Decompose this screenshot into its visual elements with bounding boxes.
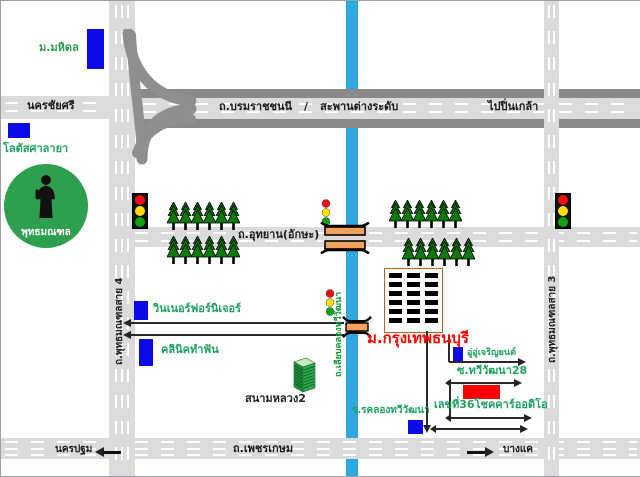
phutthamonthon-monument: พุทธมณฑล <box>4 164 88 248</box>
tree-row <box>167 236 239 264</box>
road-label-nakhon-chai-si: นครชัยศรี <box>27 100 75 112</box>
arrow-left-icon <box>430 425 436 433</box>
dental-clinic-marker <box>139 339 153 366</box>
road-label-sai4: ถ.พุทธมณฑลสาย 4 <box>112 239 127 365</box>
bridge-utthayan <box>319 222 371 254</box>
tree-row <box>402 238 474 266</box>
sanam-luang2-building <box>291 356 318 393</box>
route-line <box>130 334 344 336</box>
winner-furniture-marker <box>134 301 148 320</box>
mahidol-label: ม.มหิดล <box>39 42 79 54</box>
route-line <box>130 322 344 324</box>
school-label: ร.รคลองทวีวัฒนา <box>352 405 430 416</box>
road-label-utthayan: ถ.อุทยาน(อักษะ) <box>238 229 319 241</box>
mahidol-marker <box>87 29 104 69</box>
dental-clinic-label: คลินิคทำฟัน <box>161 344 219 356</box>
road-label-overpass: สะพานต่างระดับ <box>320 101 398 113</box>
route-line <box>449 361 520 363</box>
road-label-sai3: ถ.พุทธมณฑลสาย 3 <box>545 239 560 363</box>
tree-row <box>167 202 239 230</box>
route-line <box>450 417 526 419</box>
road-label-separator: / <box>304 101 308 113</box>
road-label-to-pinklao: ไปปิ่นเกล้า <box>488 101 538 113</box>
road-label-bang-khae: บางแค <box>503 444 533 455</box>
tree-row <box>389 200 461 228</box>
soi28-label: ซ.ทวีวัฒนา28 <box>457 365 527 377</box>
route-line <box>450 382 516 384</box>
tree-icon <box>449 200 462 228</box>
tree-icon <box>462 238 475 266</box>
buddha-statue-icon <box>29 174 63 218</box>
map-canvas: นครชัยศรี ถ.บรมราชชนนี / สะพานต่างระดับ … <box>0 0 640 477</box>
garage-marker <box>453 347 463 361</box>
arrow-right-icon <box>524 414 532 422</box>
road-label-text: ถ.บรมราชชนนี <box>219 101 292 113</box>
road-label-phetkasem: ถ.เพชรเกษม <box>233 443 293 455</box>
road-label-nakhon-pathom: นครปฐม <box>55 444 92 455</box>
winner-furniture-label: วินเนอร์ฟอร์นิเจอร์ <box>153 303 241 315</box>
tree-icon <box>227 202 240 230</box>
lotus-marker <box>8 123 30 138</box>
university-building <box>384 268 443 333</box>
road-label-liap-khlong: ถ.เลียบคลองทวีวัฒนา <box>332 273 346 377</box>
arrow-right-icon <box>514 379 522 387</box>
traffic-light-icon <box>132 193 148 229</box>
interchange-ramps <box>101 29 216 169</box>
arrow-left-icon <box>445 414 451 422</box>
lotus-label: โลตัสศาลายา <box>3 143 68 155</box>
sanam-luang2-label: สนามหลวง2 <box>245 393 306 405</box>
school-marker <box>408 420 423 434</box>
arrow-right-icon <box>485 447 494 457</box>
university-label: ม.กรุงเทพธนบุรี <box>367 330 469 347</box>
garage-label: อู่อู่เจริญยนต์ <box>467 349 516 359</box>
traffic-light-icon <box>555 193 571 229</box>
car-audio-marker <box>463 385 500 399</box>
phutthamonthon-label: พุทธมณฑล <box>4 225 88 240</box>
road-label-borommaratchachonnani: ถ.บรมราชชนนี / สะพานต่างระดับ <box>219 101 398 113</box>
arrow-right-icon <box>520 425 528 433</box>
car-audio-label: เลขที่36โชคคาร์ออดิโอ <box>434 399 548 411</box>
route-line <box>435 428 522 430</box>
